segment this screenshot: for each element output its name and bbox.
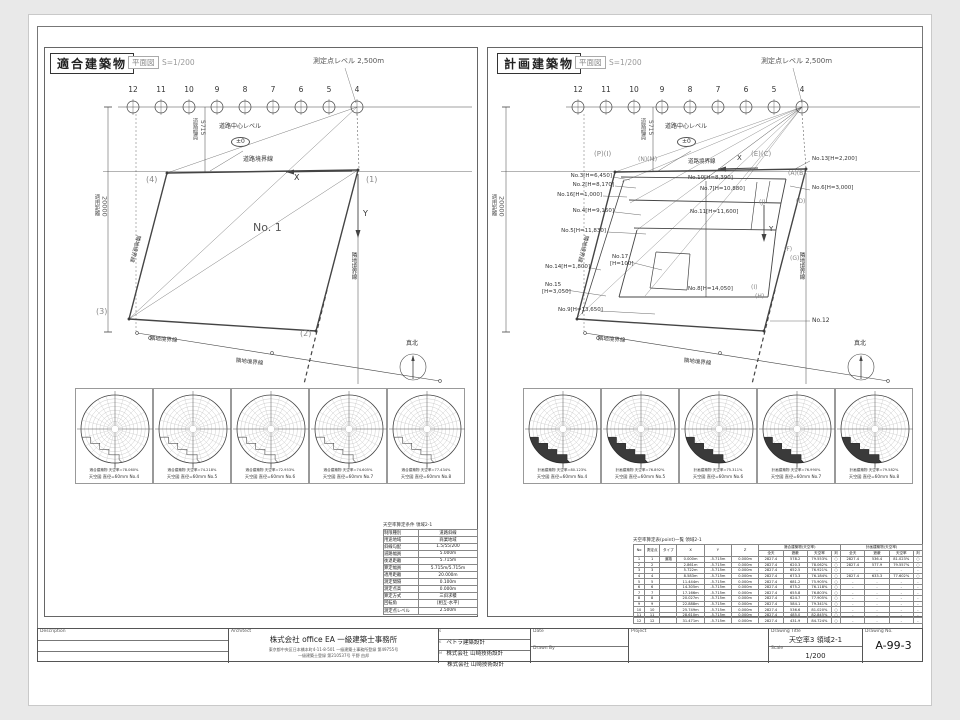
title-block-project: Project — [629, 629, 769, 663]
measure-point-number: 5 — [772, 86, 777, 94]
plan-label: 適用距離 — [93, 194, 99, 216]
plan-label: ±0 — [231, 137, 250, 147]
sky-caption-rate: 適合建築物 天空率=77.434% — [388, 469, 464, 473]
sky-caption-rate: 適合建築物 天空率=78.060% — [76, 469, 152, 473]
plan-label: (1) — [366, 176, 377, 184]
plan-label: No.15 — [545, 283, 561, 289]
measure-point-number: 8 — [688, 86, 693, 94]
measure-point-number: 4 — [800, 86, 805, 94]
condition-label: 斜線勾配 — [384, 543, 419, 550]
plan-label: No.5[H=11,830] — [561, 229, 606, 235]
plan-label: No.3[H=6,450] — [571, 174, 612, 180]
condition-value: 商業地域 — [419, 536, 478, 543]
sky-caption-no: 天空図 直径=60mm No.8 — [836, 475, 912, 479]
measure-point-number: 9 — [215, 86, 220, 94]
plan-label: No.17 — [612, 255, 628, 261]
condition-label: 測定点高 — [384, 586, 419, 593]
sky-caption-rate: 適合建築物 天空率=74.605% — [310, 469, 386, 473]
result-cell: 2827.4 — [759, 618, 783, 624]
panel-right-subtitle: 平面図 — [575, 56, 606, 69]
consultant-prefix: M — [439, 651, 442, 655]
date-label: Date — [533, 630, 544, 635]
condition-value: 20.000m — [419, 572, 478, 579]
result-col-header: タイプ — [660, 544, 677, 556]
plan-label: 道路幅員 — [639, 118, 645, 140]
condition-label: 適用距離 — [384, 572, 419, 579]
description-label: Description — [40, 630, 66, 635]
plan-label: No.10[H=8,390] — [688, 176, 733, 182]
result-cell: 84.724% — [807, 618, 831, 624]
plan-label: No.6[H=3,000] — [812, 186, 853, 192]
sky-caption-no: 天空図 直径=60mm No.6 — [232, 475, 308, 479]
sky-caption-no: 天空図 直径=60mm No.5 — [602, 475, 678, 479]
result-cell: - — [865, 618, 889, 624]
plan-label: Y — [363, 210, 368, 218]
sky-caption-rate: 計画建築物 天空率=80.123% — [524, 469, 600, 473]
plan-label: (2) — [300, 330, 311, 338]
drawing-no-value: A-99-3 — [863, 639, 924, 652]
plan-label: 道路中心レベル — [665, 124, 707, 130]
panel-left-scale: S=1/200 — [162, 58, 195, 67]
sky-caption-no: 天空図 直径=60mm No.7 — [310, 475, 386, 479]
title-block-drawing-no: Drawing No. A-99-3 — [863, 629, 924, 663]
measure-point-number: 9 — [660, 86, 665, 94]
plan-label: ±0 — [677, 137, 696, 147]
drawn-by-label: Drawn By — [533, 647, 555, 652]
result-cell: - — [913, 618, 922, 624]
sky-caption-rate: 計画建築物 天空率=79.582% — [836, 469, 912, 473]
condition-label: 道路幅員 — [384, 550, 419, 557]
measure-point-number: 7 — [716, 86, 721, 94]
plan-label: 道路境界線 — [243, 157, 273, 163]
architect-address-2: 一級建築士登録 第210537号 平野 由邦 — [229, 653, 438, 659]
title-block-drawing-title: Drawing Title 天空率3 領域2-1 Scale 1/200 — [769, 629, 863, 663]
result-cell: - — [889, 618, 913, 624]
plan-label: No.11[H=11,600] — [690, 210, 738, 216]
plan-label: (3) — [96, 308, 107, 316]
result-cell: 0.000m — [732, 618, 759, 624]
result-cell: 12 — [645, 618, 660, 624]
condition-value: 5.715m/5.715m — [419, 564, 478, 571]
sky-caption-rate: 適合建築物 天空率=74.218% — [154, 469, 230, 473]
condition-value: 0.000m — [419, 586, 478, 593]
plan-label: 道路境界線 — [688, 160, 716, 166]
plan-label: (J) — [759, 200, 765, 206]
sky-diagram: 適合建築物 天空率=74.605%天空図 直径=60mm No.7 — [309, 388, 387, 484]
plan-label: 測定点レベル 2,500m — [313, 58, 384, 65]
result-col-header: Y — [704, 544, 731, 556]
plan-label: No.7[H=10,880] — [700, 187, 745, 193]
plan-label: No.12 — [812, 318, 830, 324]
sky-caption-rate: 計画建築物 天空率=75.311% — [680, 469, 756, 473]
result-cell: ○ — [832, 618, 841, 624]
plan-label: (P)(I) — [594, 151, 611, 158]
drawing-no-label: Drawing No. — [865, 630, 893, 635]
plan-label: 隣地境界線 — [350, 252, 356, 280]
plan-label: 5715 — [647, 120, 653, 135]
plan-label: No.14[H=1,800] — [545, 265, 590, 271]
result-cell: 431.9 — [783, 618, 807, 624]
result-col-header: X — [677, 544, 704, 556]
measure-point-number: 11 — [156, 86, 166, 94]
condition-table: 天空率算定条件 領域2-1制限種別道路斜線用途地域商業地域斜線勾配1.5/55/… — [383, 524, 475, 615]
plan-label: (4) — [146, 176, 157, 184]
sky-caption-rate: 計画建築物 天空率=76.892% — [602, 469, 678, 473]
condition-value: 道路斜線 — [419, 529, 478, 536]
condition-value: 1.5/55/200 — [419, 543, 478, 550]
plan-label: (N)(M) — [638, 157, 657, 163]
result-cell: 12 — [634, 618, 645, 624]
measure-point-number: 10 — [629, 86, 639, 94]
plan-label: 真北 — [406, 341, 418, 347]
result-col-header: Z — [732, 544, 759, 556]
condition-label: 算定幅員 — [384, 564, 419, 571]
sky-diagram: 適合建築物 天空率=78.060%天空図 直径=60mm No.4 — [75, 388, 153, 484]
drawing-sheet-viewer: { "accent": {"line_color": "#444", "shee… — [0, 0, 960, 720]
plan-label: 測定点レベル 2,500m — [761, 58, 832, 65]
sky-caption-no: 天空図 直径=60mm No.4 — [76, 475, 152, 479]
plan-label: [H=100] — [610, 262, 634, 268]
measure-point-number: 5 — [327, 86, 332, 94]
title-block-architect: Architect 株式会社 office EA 一級建築士事務所 東京都中央区… — [229, 629, 439, 663]
plan-label: No.16[H=1,000] — [557, 193, 602, 199]
panel-right-title: 計画建築物 — [497, 53, 581, 74]
result-table: 天空率算定表(point)一覧 領域2-1No測定点タイプXYZ適合建築物(天空… — [633, 539, 923, 624]
plan-label: 真北 — [854, 341, 866, 347]
result-col-header: No — [634, 544, 645, 556]
plan-label: [H=3,050] — [542, 290, 571, 296]
measure-point-number: 4 — [355, 86, 360, 94]
condition-label: 制限種別 — [384, 529, 419, 536]
plan-label: X — [294, 174, 299, 182]
scale-value: 1/200 — [769, 652, 862, 660]
plan-label: No.2[H=8,170] — [573, 183, 614, 189]
measure-point-number: 12 — [573, 86, 583, 94]
sky-diagram: 計画建築物 天空率=76.892%天空図 直径=60mm No.5 — [601, 388, 679, 484]
condition-value: 2.500m — [419, 607, 478, 614]
condition-value: 三斜求積 — [419, 593, 478, 600]
plan-label: No.9[H=13,650] — [558, 308, 603, 314]
sky-caption-no: 天空図 直径=60mm No.7 — [758, 475, 834, 479]
plan-label: 20000 — [498, 196, 505, 217]
title-block: Description Architect 株式会社 office EA 一級建… — [37, 628, 923, 662]
plan-label: 道路幅員 — [191, 118, 197, 140]
plan-label: X — [737, 155, 742, 162]
panel-left-subtitle: 平面図 — [128, 56, 159, 69]
plan-label: No.13[H=2,200] — [812, 157, 857, 163]
result-cell: 31.471m — [677, 618, 704, 624]
drawing-title-label: Drawing Title — [771, 630, 801, 635]
sky-diagram: 計画建築物 天空率=75.311%天空図 直径=60mm No.6 — [679, 388, 757, 484]
sky-diagram: 計画建築物 天空率=80.123%天空図 直径=60mm No.4 — [523, 388, 601, 484]
sky-diagram: 適合建築物 天空率=77.434%天空図 直径=60mm No.8 — [387, 388, 465, 484]
panel-right-scale: S=1/200 — [609, 58, 642, 67]
consultant-prefix: K — [439, 640, 441, 644]
plan-label: (I) — [751, 285, 757, 291]
condition-label: 後退距離 — [384, 557, 419, 564]
sky-caption-rate: 適合建築物 天空率=72.953% — [232, 469, 308, 473]
measure-point-number: 12 — [128, 86, 138, 94]
plan-label: (E)(C) — [751, 151, 771, 158]
panel-left-title: 適合建築物 — [50, 53, 134, 74]
sky-diagram: 適合建築物 天空率=72.953%天空図 直径=60mm No.6 — [231, 388, 309, 484]
title-block-date: Date Drawn By — [531, 629, 629, 663]
sky-caption-no: 天空図 直径=60mm No.8 — [388, 475, 464, 479]
plan-label: 道路中心レベル — [219, 124, 261, 130]
plan-label: 隣地境界線 — [798, 252, 804, 280]
condition-value: 5.000m — [419, 550, 478, 557]
project-label: Project — [631, 630, 646, 635]
plan-label: No. 1 — [253, 222, 282, 233]
sky-caption-no: 天空図 直径=60mm No.6 — [680, 475, 756, 479]
sky-caption-no: 天空図 直径=60mm No.4 — [524, 475, 600, 479]
measure-point-number: 10 — [184, 86, 194, 94]
condition-label: 算定方式 — [384, 593, 419, 600]
condition-value: 0.100m — [419, 579, 478, 586]
scale-label: Scale — [771, 647, 783, 652]
measure-point-number: 7 — [271, 86, 276, 94]
plan-label: 5715 — [199, 120, 205, 135]
condition-label: 測定間隔 — [384, 579, 419, 586]
result-cell: -5.715m — [704, 618, 731, 624]
plan-label: Y — [769, 226, 773, 233]
measure-point-number: 8 — [243, 86, 248, 94]
architect-name: 株式会社 office EA 一級建築士事務所 — [229, 634, 438, 645]
condition-value: [相互-水平] — [419, 600, 478, 607]
plan-label: (F) — [784, 247, 792, 253]
condition-label: 回転角 — [384, 600, 419, 607]
drawing-title-value: 天空率3 領域2-1 — [769, 635, 862, 645]
plan-label: (D) — [796, 199, 805, 205]
condition-label: 測定点レベル — [384, 607, 419, 614]
measure-point-number: 6 — [299, 86, 304, 94]
plan-label: 適用距離 — [490, 194, 496, 216]
consultant-prefix: S — [439, 629, 441, 633]
sky-diagram: 適合建築物 天空率=74.218%天空図 直径=60mm No.5 — [153, 388, 231, 484]
result-col-header: 測定点 — [645, 544, 660, 556]
sky-caption-no: 天空図 直径=60mm No.5 — [154, 475, 230, 479]
sky-caption-rate: 計画建築物 天空率=76.990% — [758, 469, 834, 473]
condition-value: 5.715m — [419, 557, 478, 564]
plan-label: No.8[H=14,050] — [688, 287, 733, 293]
sky-diagram: 計画建築物 天空率=79.582%天空図 直径=60mm No.8 — [835, 388, 913, 484]
plan-label: No.4[H=9,160] — [573, 209, 614, 215]
panel-planned-building — [487, 47, 923, 617]
result-cell: - — [841, 618, 865, 624]
measure-point-number: 6 — [744, 86, 749, 94]
result-cell — [660, 618, 677, 624]
measure-point-number: 11 — [601, 86, 611, 94]
consultant-name: 株式会社 山崎技術設計 — [447, 662, 504, 668]
condition-label: 用途地域 — [384, 536, 419, 543]
plan-label: (A)(B) — [788, 171, 806, 177]
plan-label: 20000 — [101, 196, 108, 217]
title-block-consultants: S ペトラ建築設計 K 株式会社 山崎技術設計 M 株式会社 山崎技術設計 — [439, 629, 531, 663]
sky-diagram: 計画建築物 天空率=76.990%天空図 直径=60mm No.7 — [757, 388, 835, 484]
plan-label: (H) — [755, 294, 764, 300]
title-block-description: Description — [38, 629, 229, 663]
